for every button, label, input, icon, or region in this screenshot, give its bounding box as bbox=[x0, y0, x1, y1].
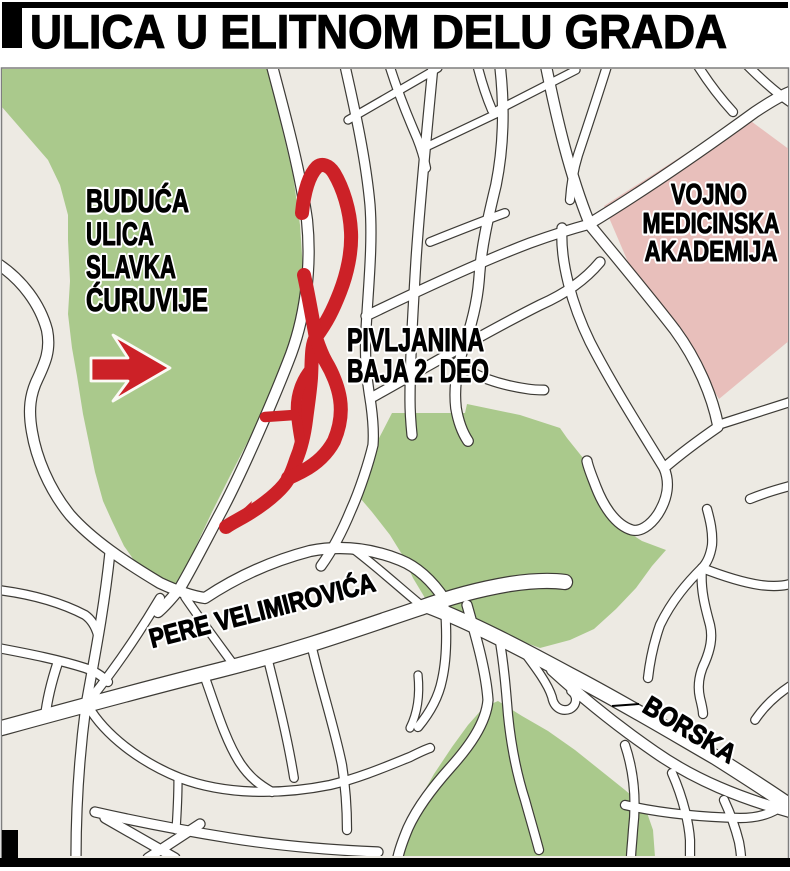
svg-text:BAJA 2. DEO: BAJA 2. DEO bbox=[347, 353, 489, 389]
svg-text:ULICA U ELITNOM DELU GRADA: ULICA U ELITNOM DELU GRADA bbox=[30, 5, 727, 58]
svg-text:ĆURUVIJE: ĆURUVIJE bbox=[86, 282, 208, 318]
svg-text:VOJNO: VOJNO bbox=[671, 179, 747, 211]
svg-text:SLAVKA: SLAVKA bbox=[86, 249, 176, 285]
svg-text:ULICA: ULICA bbox=[86, 216, 154, 252]
svg-text:AKADEMIJA: AKADEMIJA bbox=[645, 236, 778, 268]
svg-text:BUDUĆA: BUDUĆA bbox=[86, 183, 189, 219]
